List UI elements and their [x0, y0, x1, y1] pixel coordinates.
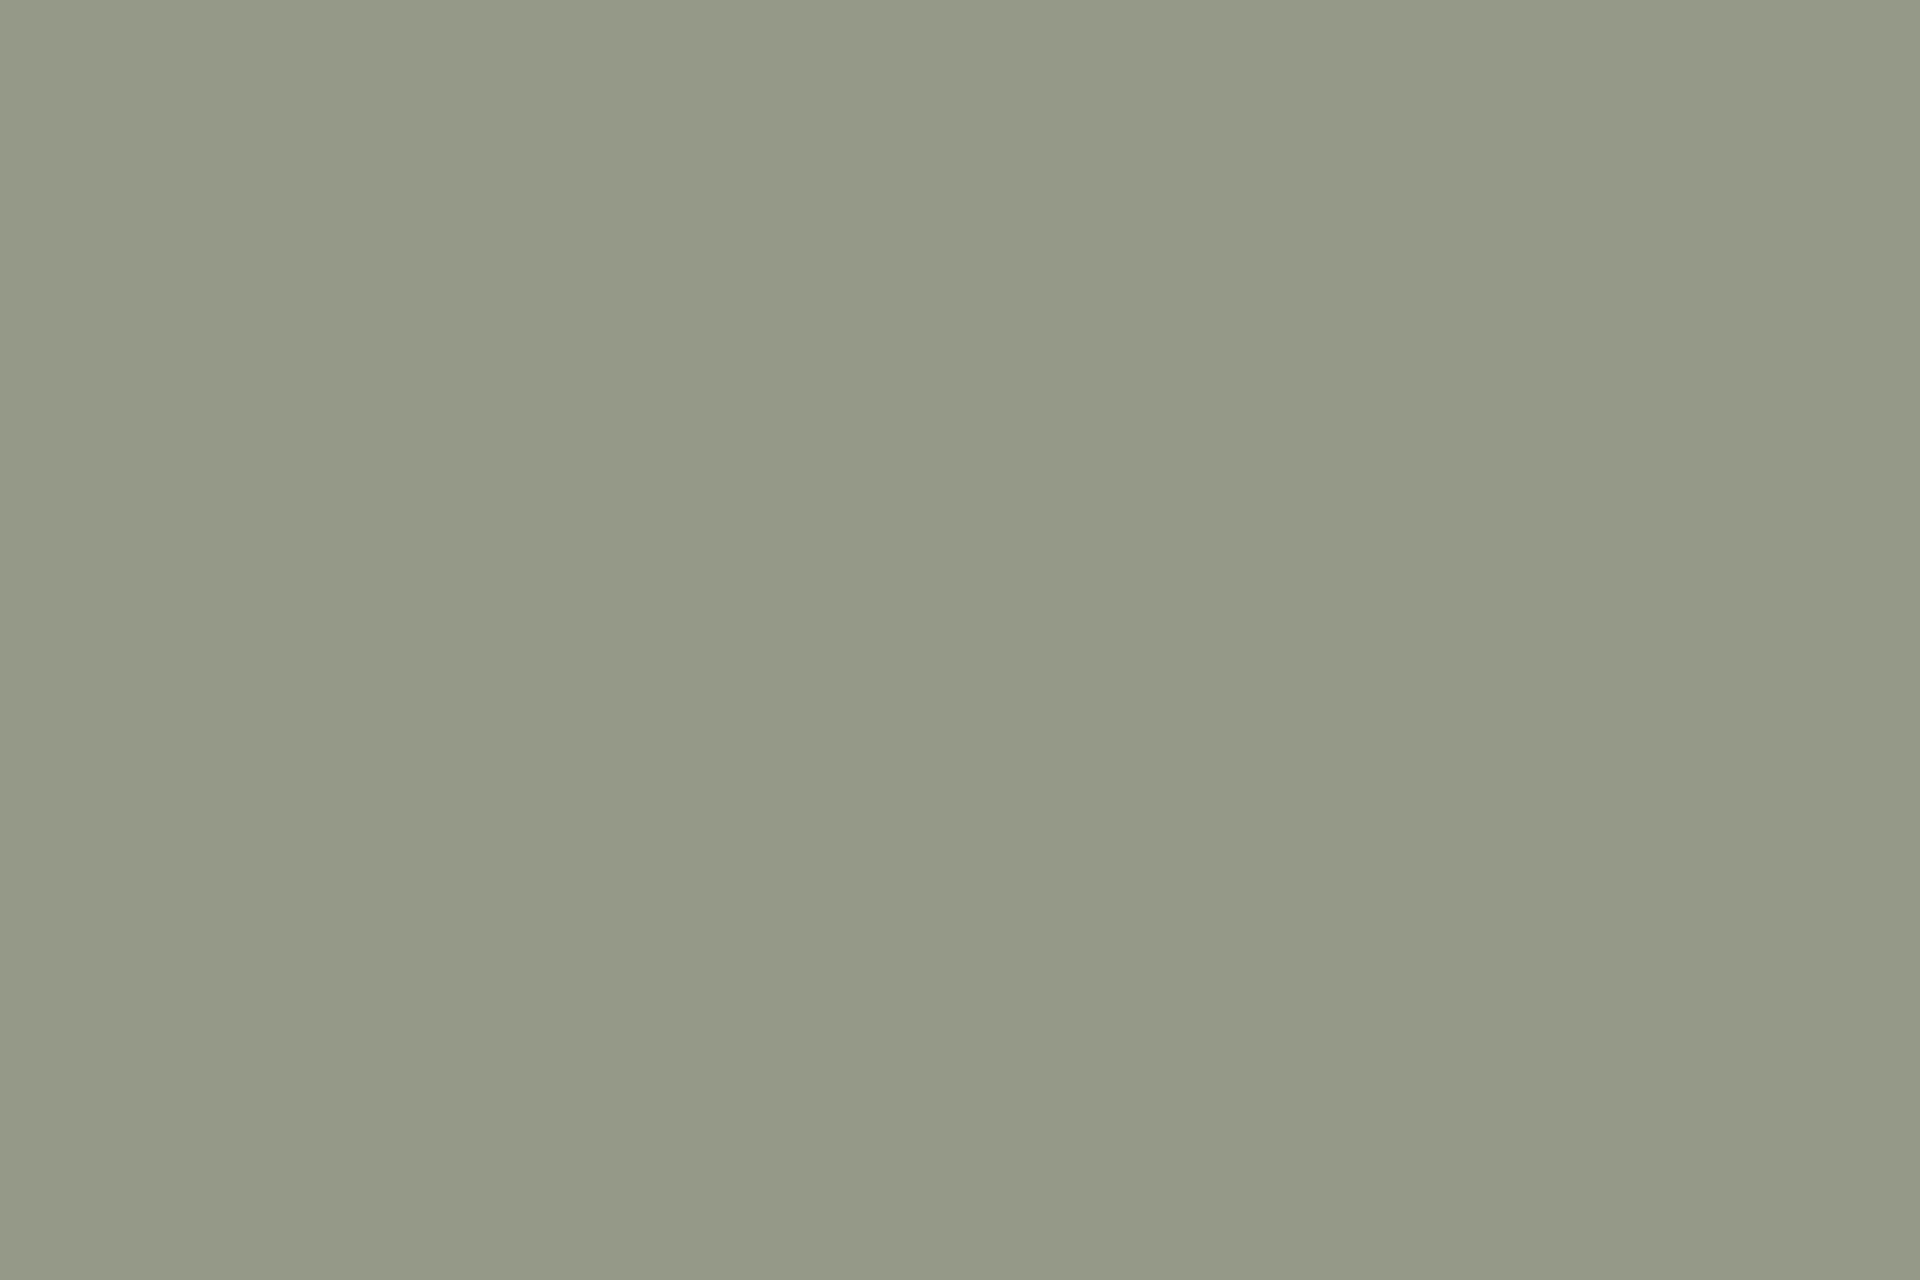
- satellite-map: [0, 0, 1920, 1280]
- map-viewport[interactable]: [0, 0, 1920, 1280]
